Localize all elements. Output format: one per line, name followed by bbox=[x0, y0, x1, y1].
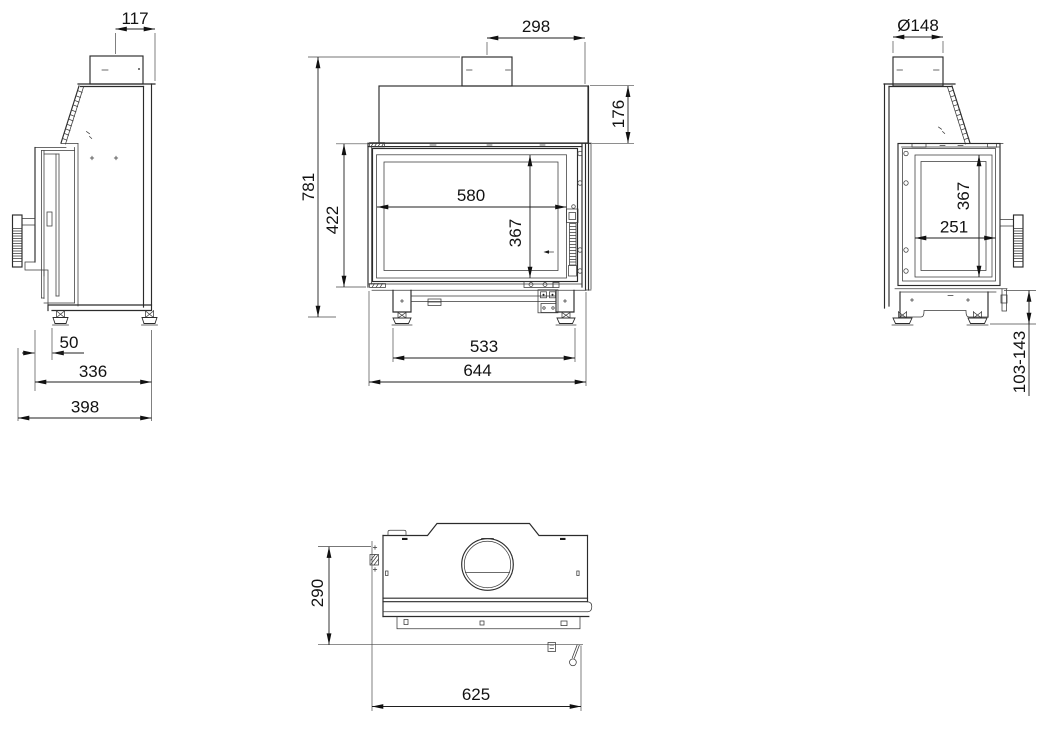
top-view: 290 625 bbox=[308, 524, 592, 712]
dim-label-367-right: 367 bbox=[954, 182, 973, 210]
right-side-view: Ø148 367 251 103-143 bbox=[884, 16, 1036, 396]
dim-side-glass-height: 367 bbox=[954, 155, 979, 277]
flue-collar-right bbox=[893, 57, 943, 86]
handle-knob-top bbox=[570, 659, 577, 666]
dim-label-diameter-148: Ø148 bbox=[897, 16, 939, 35]
base-frame-front bbox=[372, 290, 586, 325]
technical-drawing-canvas: 117 50 336 398 bbox=[0, 0, 1056, 729]
handle-knurl bbox=[1014, 231, 1022, 259]
dim-side-glass-width: 251 bbox=[915, 218, 996, 239]
feet-right-view bbox=[892, 312, 988, 326]
door-handle-right bbox=[1000, 215, 1023, 267]
dim-flue-diameter: Ø148 bbox=[893, 16, 943, 53]
dim-label-117: 117 bbox=[121, 9, 148, 28]
slant-hatch bbox=[949, 90, 968, 139]
panel-specks bbox=[87, 132, 118, 160]
body-outline-side bbox=[25, 84, 155, 311]
dim-label-103-143: 103-143 bbox=[1010, 331, 1029, 393]
door-handle-top bbox=[318, 643, 583, 666]
hinge-cover-tab bbox=[388, 530, 406, 535]
flue-collar-side bbox=[90, 56, 143, 84]
dim-firebox-height: 422 bbox=[323, 144, 370, 287]
junction-box-top bbox=[370, 546, 379, 571]
dim-depth: 290 bbox=[308, 547, 371, 645]
feet-front bbox=[392, 312, 576, 325]
glass-opening bbox=[377, 155, 567, 278]
dim-label-644: 644 bbox=[463, 361, 491, 380]
hood-panel bbox=[379, 86, 588, 143]
hinge-pins bbox=[904, 151, 908, 273]
dim-hood-height: 176 bbox=[590, 86, 634, 144]
top-outline bbox=[383, 524, 592, 629]
door-latch bbox=[47, 212, 52, 226]
technical-drawing-page: 117 50 336 398 bbox=[0, 0, 1056, 729]
door-handle-front bbox=[567, 205, 579, 276]
dim-label-422: 422 bbox=[323, 206, 342, 234]
dim-label-580: 580 bbox=[457, 186, 485, 205]
side-glass-opening bbox=[915, 155, 992, 277]
dim-total-depth: 398 bbox=[18, 348, 152, 421]
glass-inner-line bbox=[384, 162, 558, 271]
dim-width: 625 bbox=[372, 541, 581, 711]
body-outline-right bbox=[884, 84, 1003, 308]
latch-bracket bbox=[524, 282, 553, 288]
dim-label-336: 336 bbox=[79, 362, 107, 381]
dim-label-176: 176 bbox=[609, 100, 628, 128]
dim-label-50: 50 bbox=[60, 333, 79, 352]
dim-glass-height: 367 bbox=[506, 155, 530, 278]
dim-flue-center-to-edge: 298 bbox=[487, 17, 585, 84]
dim-label-398: 398 bbox=[71, 398, 99, 417]
door-frame bbox=[373, 149, 578, 282]
dim-base-height-range: 103-143 bbox=[990, 291, 1036, 397]
dim-label-625: 625 bbox=[462, 685, 490, 704]
door-handle-side bbox=[13, 215, 36, 267]
side-door-frame bbox=[898, 144, 1000, 286]
handle-knurl bbox=[13, 231, 21, 259]
dim-label-298: 298 bbox=[522, 17, 550, 36]
base-frame-right bbox=[892, 289, 1007, 325]
dim-glass-width: 580 bbox=[377, 186, 567, 207]
dim-label-367-front: 367 bbox=[506, 219, 525, 247]
dim-label-290: 290 bbox=[308, 579, 327, 607]
dim-feet-span: 533 bbox=[393, 328, 575, 362]
dim-flue-offset: 117 bbox=[116, 9, 156, 81]
panel-specks bbox=[939, 127, 945, 134]
dim-label-251: 251 bbox=[940, 218, 968, 237]
air-flow-arrow-icon bbox=[544, 250, 554, 254]
flue-opening-top bbox=[462, 538, 514, 590]
dim-label-781: 781 bbox=[299, 173, 318, 201]
feet-side bbox=[53, 311, 158, 326]
front-view: 298 176 781 422 580 367 533 bbox=[299, 17, 634, 386]
left-side-view: 117 50 336 398 bbox=[13, 9, 158, 421]
flue-collar-front bbox=[462, 57, 512, 86]
dim-label-533: 533 bbox=[470, 337, 498, 356]
slant-hatch bbox=[62, 91, 82, 141]
